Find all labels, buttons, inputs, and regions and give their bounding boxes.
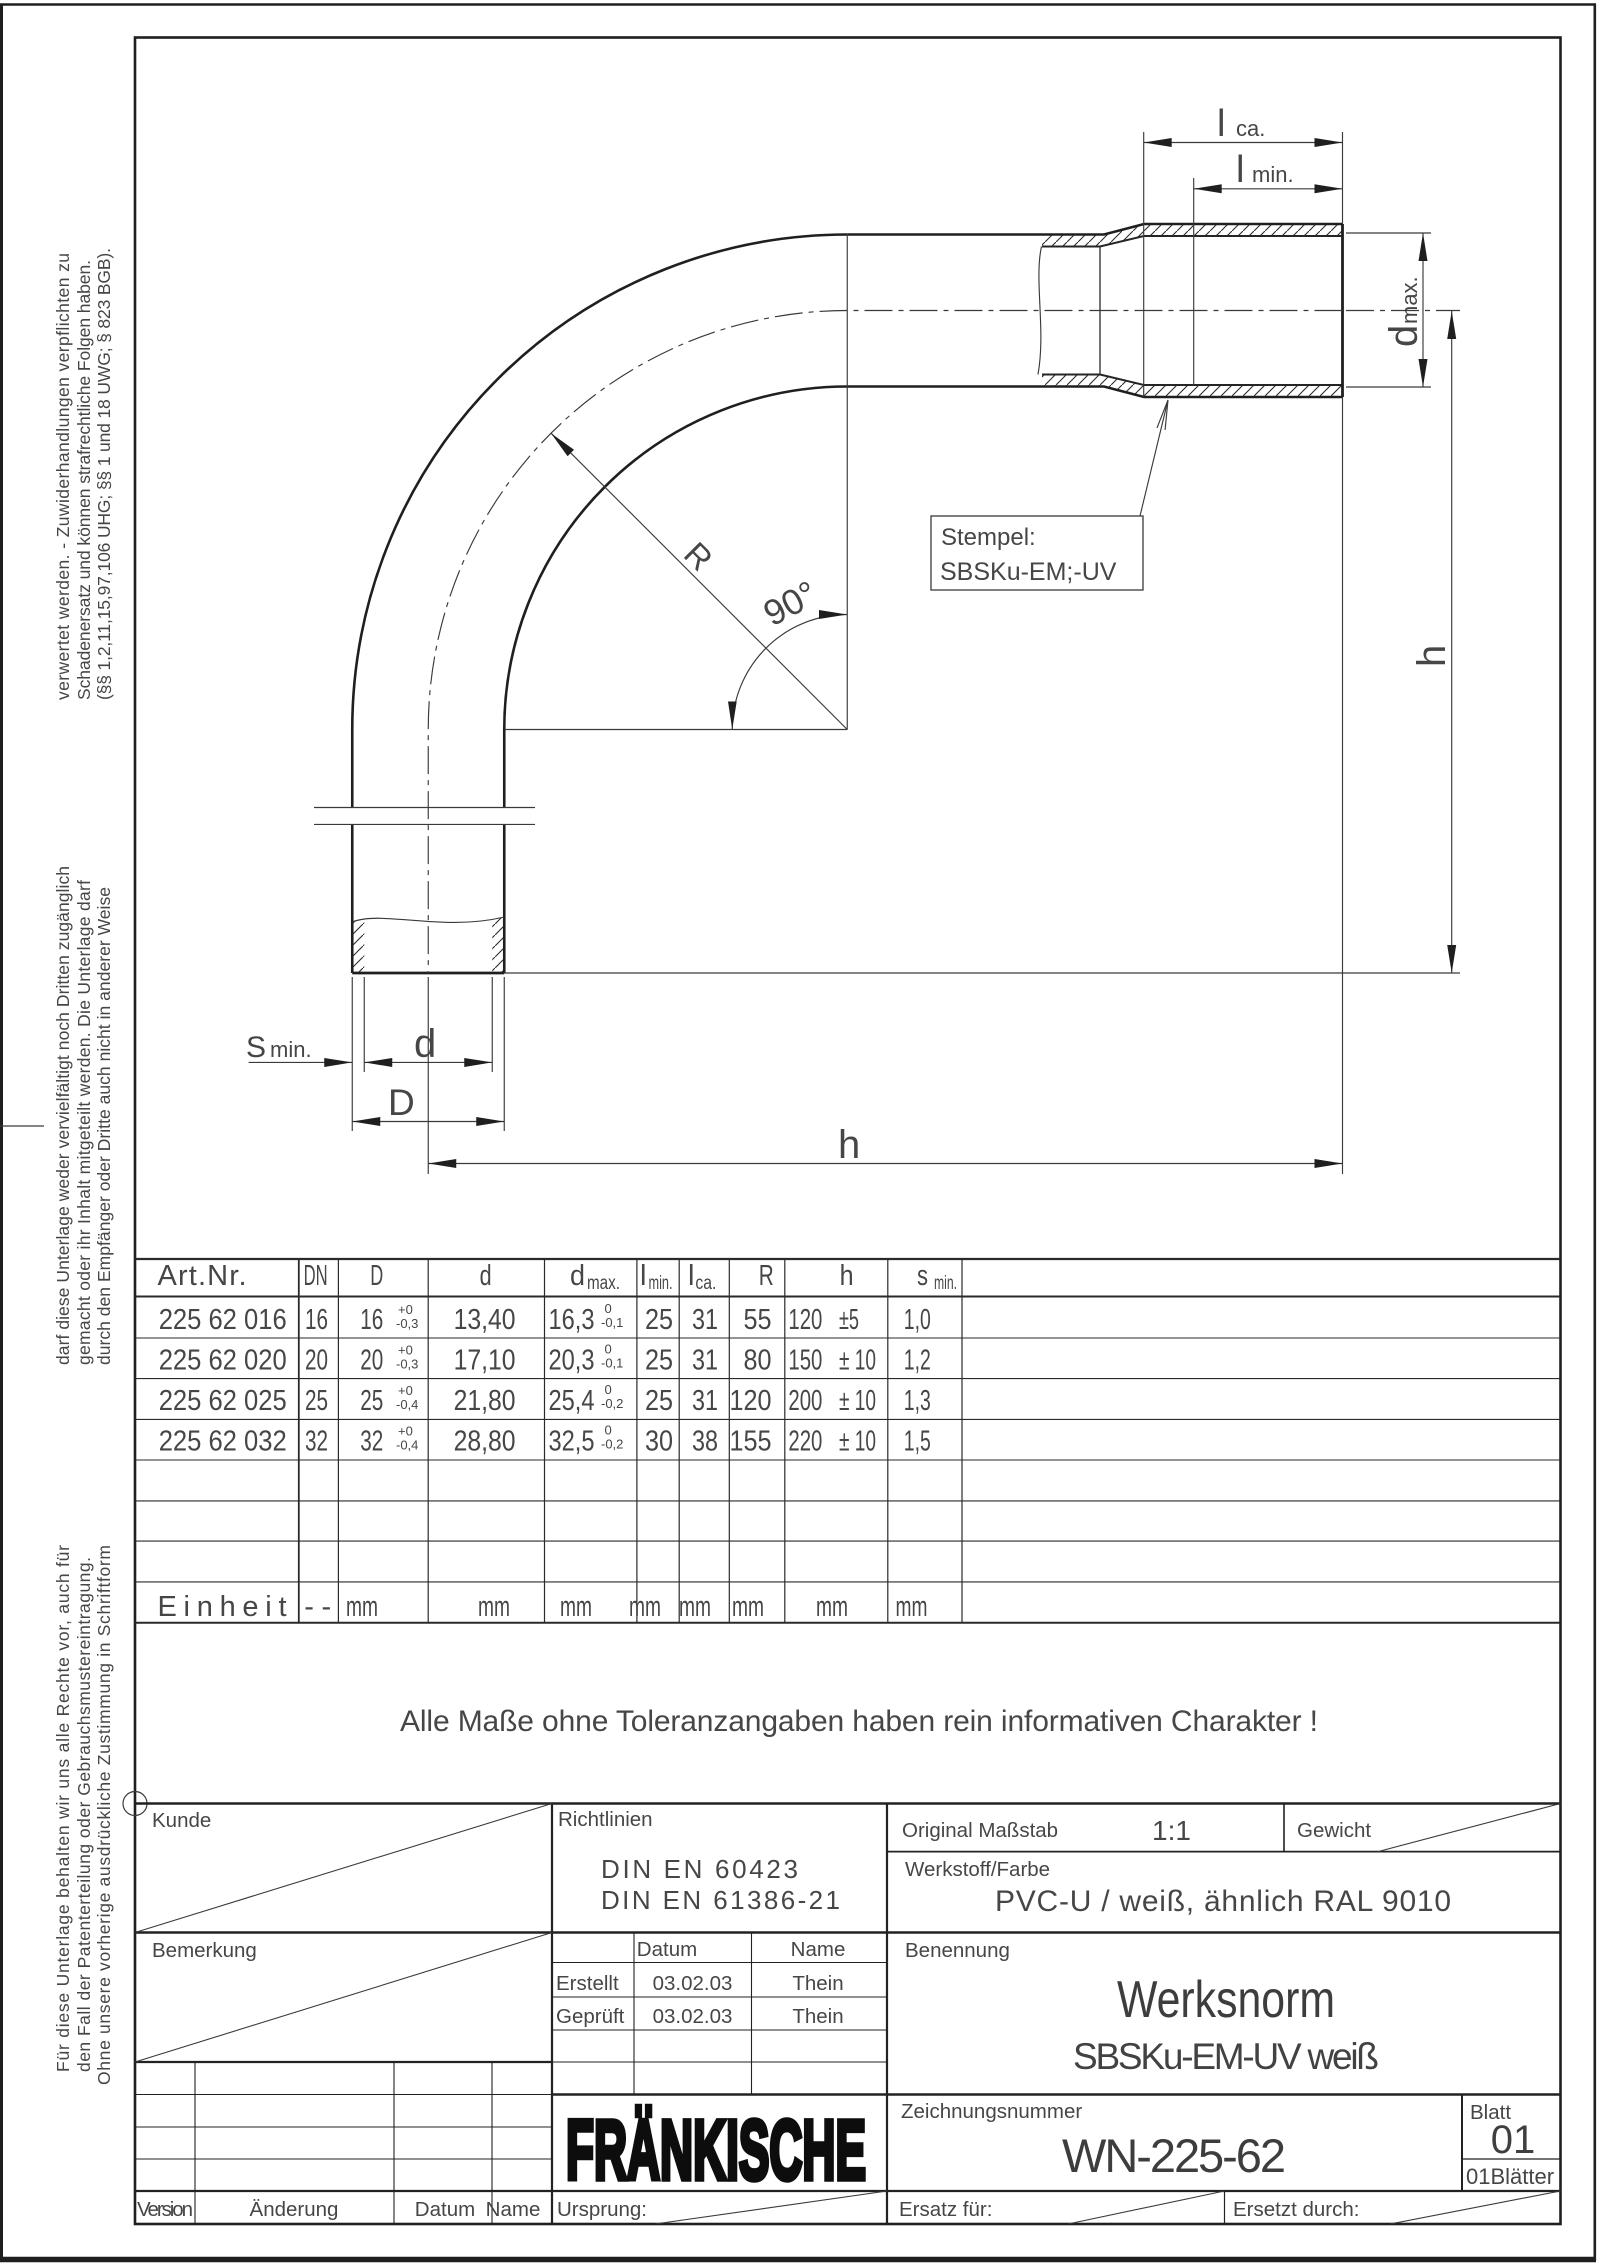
svg-text:durch den Empfänger oder Dritt: durch den Empfänger oder Dritte auch nic… [94,887,114,1365]
svg-text:0: 0 [605,1301,612,1316]
svg-text:-0,2: -0,2 [601,1396,623,1411]
svg-text:s: s [917,1260,928,1292]
svg-text:-0,1: -0,1 [601,1356,623,1371]
svg-text:Benennung: Benennung [905,1939,1010,1962]
svg-text:Name: Name [791,1938,846,1961]
svg-text:1,5: 1,5 [904,1426,931,1458]
svg-text:1:1: 1:1 [1152,1815,1191,1846]
svg-text:-0,2: -0,2 [601,1437,623,1452]
svg-text:17,10: 17,10 [454,1345,516,1377]
svg-text:220: 220 [788,1426,822,1458]
svg-text:1,3: 1,3 [904,1385,931,1417]
svg-text:DIN EN 61386-21: DIN EN 61386-21 [601,1885,840,1915]
svg-text:l: l [640,1260,646,1292]
svg-text:Richtlinien: Richtlinien [558,1808,653,1831]
svg-text:30: 30 [645,1426,673,1458]
svg-text:Erstellt: Erstellt [556,1972,619,1995]
svg-text:01: 01 [1491,2118,1536,2162]
svg-text:ca.: ca. [695,1273,716,1294]
svg-text:Datum: Datum [415,2198,475,2221]
svg-text:den Fall der Patenterteilung o: den Fall der Patenterteilung oder Gebrau… [74,1557,94,2072]
svg-text:mm: mm [732,1591,764,1623]
svg-text:25: 25 [645,1385,673,1417]
svg-text:(§§ 1,2,11,15,97,106 UHG; §§ 1: (§§ 1,2,11,15,97,106 UHG; §§ 1 und 18 UW… [94,248,114,700]
svg-text:± 10: ± 10 [839,1345,876,1377]
svg-text:225 62 025: 225 62 025 [159,1385,287,1417]
svg-text:R: R [759,1260,774,1292]
svg-text:Original Maßstab: Original Maßstab [902,1819,1058,1842]
svg-text:Version: Version [137,2198,193,2221]
svg-text:Kunde: Kunde [152,1809,211,1832]
svg-text:1,2: 1,2 [904,1345,931,1377]
svg-text:Schadenersatz und können straf: Schadenersatz und können strafrechtliche… [74,260,94,700]
svg-text:16: 16 [305,1304,328,1336]
svg-text:mm: mm [816,1591,848,1623]
svg-text:ca.: ca. [1236,116,1265,141]
svg-text:Datum: Datum [637,1938,697,1961]
svg-text:20,3: 20,3 [549,1345,595,1377]
svg-text:l: l [1236,149,1244,191]
svg-text:l: l [1217,103,1225,145]
svg-text:32: 32 [305,1426,328,1458]
svg-text:0: 0 [605,1423,612,1438]
svg-text:Zeichnungsnummer: Zeichnungsnummer [901,2100,1082,2123]
svg-text:150: 150 [788,1345,822,1377]
svg-text:± 10: ± 10 [839,1426,876,1458]
svg-text:16: 16 [360,1304,383,1336]
svg-text:Thein: Thein [792,1972,843,1995]
svg-text:d: d [1382,325,1426,347]
svg-text:25: 25 [645,1304,673,1336]
svg-text:min.: min. [649,1273,673,1294]
svg-text:200: 200 [788,1385,822,1417]
svg-text:25: 25 [305,1385,328,1417]
svg-text:1,0: 1,0 [904,1304,931,1336]
svg-text:Thein: Thein [792,2005,843,2028]
svg-text:Ursprung:: Ursprung: [557,2198,647,2221]
svg-text:mm: mm [478,1591,510,1623]
svg-text:01Blätter: 01Blätter [1466,2164,1554,2189]
svg-text:Änderung: Änderung [250,2198,339,2221]
svg-text:Bemerkung: Bemerkung [152,1939,257,1962]
svg-text:S: S [246,1031,266,1064]
svg-text:Werksnorm: Werksnorm [1117,1971,1335,2029]
svg-text:d: d [414,1022,436,1066]
svg-text:-0,4: -0,4 [396,1397,418,1412]
svg-text:-0,4: -0,4 [396,1438,418,1453]
svg-text:mm: mm [629,1591,661,1623]
svg-text:Ohne unsere vorherige ausdrück: Ohne unsere vorherige ausdrückliche Zust… [94,1545,114,2085]
svg-text:min.: min. [270,1037,312,1062]
svg-text:-0,3: -0,3 [396,1357,418,1372]
svg-text:-0,3: -0,3 [396,1316,418,1331]
svg-text:03.02.03: 03.02.03 [653,1972,733,1995]
svg-text:l: l [688,1260,694,1292]
svg-text:d: d [570,1260,585,1292]
svg-text:20: 20 [360,1345,383,1377]
svg-text:03.02.03: 03.02.03 [653,2005,733,2028]
svg-text:PVC-U / weiß, ähnlich RAL 9010: PVC-U / weiß, ähnlich RAL 9010 [995,1885,1451,1918]
svg-text:32,5: 32,5 [549,1426,595,1458]
svg-text:225 62 016: 225 62 016 [159,1304,287,1336]
svg-text:D: D [388,1082,415,1123]
svg-text:Ersetzt durch:: Ersetzt durch: [1233,2198,1359,2221]
svg-text:h: h [838,1123,860,1167]
svg-text:min.: min. [934,1273,957,1294]
svg-text:mm: mm [346,1591,378,1623]
svg-text:25,4: 25,4 [549,1385,595,1417]
svg-text:darf diese Unterlage weder ver: darf diese Unterlage weder vervielfältig… [53,866,73,1365]
svg-text:Für diese Unterlage behalten w: Für diese Unterlage behalten wir uns all… [53,1545,73,2072]
svg-text:Art.Nr.: Art.Nr. [158,1260,247,1292]
svg-text:+0: +0 [398,1302,413,1317]
svg-text:mm: mm [560,1591,592,1623]
svg-text:80: 80 [744,1345,772,1377]
svg-text:225 62 032: 225 62 032 [159,1426,287,1458]
svg-text:DN: DN [304,1260,328,1292]
svg-text:31: 31 [692,1385,718,1417]
svg-text:28,80: 28,80 [454,1426,516,1458]
svg-text:gemacht oder ihr Inhalt mitget: gemacht oder ihr Inhalt mitgeteilt werde… [74,880,94,1365]
svg-text:Gewicht: Gewicht [1297,1819,1371,1842]
svg-text:SBSKu-EM-UV weiß: SBSKu-EM-UV weiß [1073,2036,1379,2077]
svg-text:Alle Maße ohne Toleranzangaben: Alle Maße ohne Toleranzangaben haben rei… [400,1705,1318,1738]
svg-text:Werkstoff/Farbe: Werkstoff/Farbe [905,1858,1050,1881]
svg-text:Ersatz für:: Ersatz für: [899,2198,992,2221]
svg-text:D: D [370,1260,383,1292]
svg-text:Geprüft: Geprüft [556,2005,625,2028]
svg-text:120: 120 [730,1385,772,1417]
svg-text:32: 32 [360,1426,383,1458]
svg-text:+0: +0 [398,1343,413,1358]
svg-text:WN-225-62: WN-225-62 [1062,2129,1286,2182]
svg-text:31: 31 [692,1345,718,1377]
svg-text:max.: max. [587,1273,620,1294]
svg-text:h: h [840,1260,854,1292]
svg-text:FRÄNKISCHE: FRÄNKISCHE [566,2103,866,2197]
svg-text:SBSKu-EM;-UV: SBSKu-EM;-UV [940,558,1117,586]
svg-text:0: 0 [605,1342,612,1357]
svg-text:31: 31 [692,1304,718,1336]
svg-text:max.: max. [1397,276,1422,324]
svg-text:verwertet werden. - Zuwiderhan: verwertet werden. - Zuwiderhandlungen ve… [53,253,73,700]
svg-text:55: 55 [744,1304,772,1336]
svg-text:25: 25 [360,1385,383,1417]
svg-text:155: 155 [730,1426,772,1458]
svg-text:225 62 020: 225 62 020 [159,1345,287,1377]
svg-text:120: 120 [788,1304,822,1336]
svg-text:mm: mm [679,1591,711,1623]
svg-text:13,40: 13,40 [454,1304,516,1336]
svg-text:Name: Name [486,2198,541,2221]
svg-text:0: 0 [605,1382,612,1397]
svg-text:25: 25 [645,1345,673,1377]
svg-text:+0: +0 [398,1383,413,1398]
svg-text:20: 20 [305,1345,328,1377]
svg-text:Stempel:: Stempel: [941,524,1036,551]
svg-text:16,3: 16,3 [549,1304,595,1336]
svg-text:± 10: ± 10 [839,1385,876,1417]
svg-text:min.: min. [1252,162,1294,187]
svg-text:h: h [1410,645,1454,667]
svg-text:mm: mm [896,1591,928,1623]
svg-text:+0: +0 [398,1424,413,1439]
svg-text:±5: ±5 [839,1304,859,1336]
svg-text:38: 38 [692,1426,718,1458]
svg-text:-0,1: -0,1 [601,1315,623,1330]
svg-text:d: d [480,1260,492,1292]
svg-text:21,80: 21,80 [454,1385,516,1417]
